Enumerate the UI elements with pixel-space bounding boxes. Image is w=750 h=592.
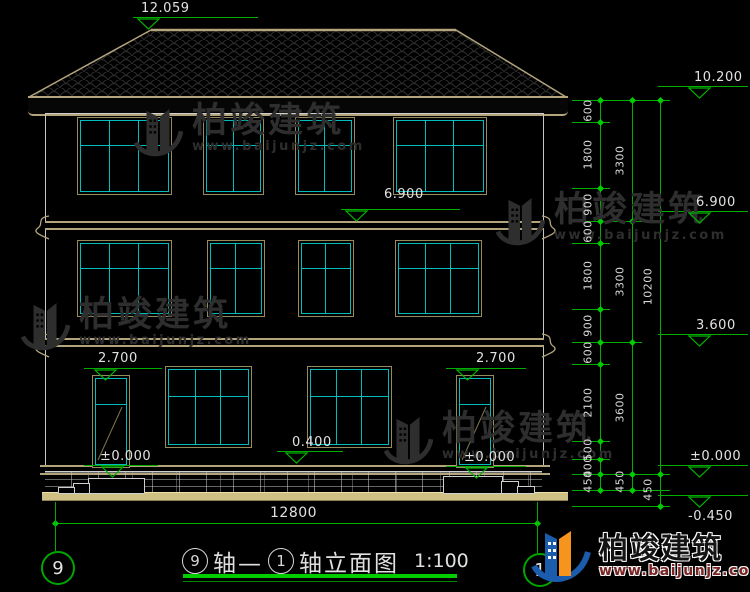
window-mullion — [138, 244, 139, 313]
dimension-value: 1800 — [583, 133, 594, 177]
dimension-value: 3300 — [615, 139, 626, 183]
belt-moulding-left — [31, 215, 51, 241]
window-mullion — [453, 121, 454, 191]
drawing-graphic — [689, 467, 710, 477]
elevation-marker-triangle — [345, 210, 369, 223]
dimension-tick — [597, 97, 604, 104]
dimension-tick — [629, 218, 636, 225]
window-mullion — [450, 244, 451, 313]
drawing-graphic — [36, 216, 49, 239]
window-mullion — [220, 370, 221, 444]
roof-surface — [29, 30, 566, 97]
dimension-value: 600 — [583, 331, 594, 375]
third-floor-window — [393, 117, 487, 195]
elevation-value: 6.900 — [696, 196, 736, 209]
second-floor-window — [298, 240, 354, 317]
drawing-graphic — [286, 453, 307, 463]
elevation-marker-triangle — [285, 452, 309, 465]
window-sash — [168, 369, 249, 445]
logo-tower-orange — [559, 531, 571, 576]
elevation-value: 3.600 — [696, 319, 736, 332]
elevation-value: 2.700 — [476, 352, 516, 365]
floor-band-6900 — [45, 221, 544, 230]
first-floor-window — [165, 366, 252, 448]
left-step-2 — [58, 487, 75, 494]
drawing-graphic — [542, 334, 555, 357]
elevation-marker-triangle — [688, 87, 712, 100]
window-sash — [301, 243, 351, 314]
title-text-1: 轴— — [213, 544, 263, 578]
elevation-marker-triangle — [456, 369, 480, 382]
drawing-graphic — [548, 542, 551, 545]
brand-url: www.baijunjz.com — [599, 563, 750, 579]
window-mullion — [425, 244, 426, 313]
logo-tower-blue — [545, 533, 557, 576]
left-step-1 — [73, 483, 90, 494]
drawing-graphic — [138, 19, 159, 29]
title-axis-9: 9 — [190, 552, 200, 570]
drawing-graphic — [553, 549, 556, 552]
window-sash — [398, 243, 479, 314]
title-scale: 1:100 — [414, 550, 469, 572]
drawing-graphic — [548, 549, 551, 552]
dimension-value: 2100 — [583, 381, 594, 425]
dimension-tick — [629, 471, 636, 478]
elevation-marker-triangle — [688, 212, 712, 225]
window-transom — [81, 268, 168, 269]
window-transom — [397, 145, 483, 146]
drawing-title: 9 轴— 1 轴立面图 1:100 — [182, 544, 469, 578]
elevation-marker-triangle — [465, 467, 489, 480]
window-transom — [81, 145, 168, 146]
window-sash — [80, 120, 169, 192]
window-sash — [310, 369, 389, 445]
dimension-value: 1800 — [583, 254, 594, 298]
drawing-graphic — [542, 216, 555, 239]
title-underline-thin — [183, 581, 457, 582]
dimension-value: 450 — [643, 468, 654, 512]
drawing-graphic — [36, 334, 49, 357]
dimension-tick — [597, 456, 604, 463]
window-transom — [399, 268, 478, 269]
title-axis-circle-1: 1 — [268, 548, 294, 574]
drawing-graphic — [41, 319, 43, 321]
window-mullion — [109, 121, 110, 191]
dimension-tick — [597, 119, 604, 126]
window-mullion — [425, 121, 426, 191]
elevation-value: -0.450 — [688, 510, 733, 523]
axis-bubble-9: 9 — [41, 551, 75, 585]
brand-logo-icon — [530, 524, 592, 588]
elevation-marker-triangle — [101, 466, 125, 479]
drawing-graphic: 柏竣建筑 www.baijunjz.com — [599, 533, 750, 579]
window-mullion — [233, 121, 234, 191]
dimension-tick — [629, 487, 636, 494]
third-floor-window — [295, 117, 355, 195]
dimension-value: 450 — [615, 460, 626, 504]
window-sash — [206, 120, 261, 192]
second-floor-window — [395, 240, 482, 317]
dimension-value: 600 — [583, 210, 594, 254]
dimension-tick — [597, 339, 604, 346]
drawing-graphic — [346, 211, 367, 221]
elevation-value: ±0.000 — [690, 450, 741, 463]
elevation-value: ±0.000 — [464, 451, 515, 464]
title-axis-1: 1 — [276, 552, 286, 570]
window-transom — [299, 145, 351, 146]
dimension-value: 600 — [583, 89, 594, 133]
drawing-graphic — [95, 370, 116, 380]
window-mullion — [325, 244, 326, 313]
window-transom — [211, 268, 261, 269]
elevation-marker-triangle — [688, 466, 712, 479]
window-mullion — [324, 121, 325, 191]
elevation-value: 12.059 — [141, 2, 190, 15]
drawing-graphic — [36, 325, 38, 327]
window-mullion — [195, 370, 196, 444]
level-extension-line — [572, 506, 670, 507]
dimension-tick — [597, 185, 604, 192]
elevation-marker-triangle — [94, 369, 118, 382]
dimension-tick — [657, 97, 664, 104]
drawing-graphic — [457, 370, 478, 380]
window-mullion — [336, 370, 337, 444]
left-door-platform — [88, 478, 145, 494]
window-mullion — [109, 244, 110, 313]
drawing-graphic — [36, 314, 43, 328]
dimension-tick — [597, 306, 604, 313]
second-floor-window — [77, 240, 172, 317]
dimension-tick — [629, 97, 636, 104]
drawing-graphic — [36, 314, 38, 316]
third-floor-window — [77, 117, 172, 195]
dimension-value: 10200 — [643, 265, 654, 309]
brand-logo: 柏竣建筑 www.baijunjz.com — [530, 524, 750, 588]
elevation-value: 10.200 — [694, 71, 743, 84]
dimension-tick — [597, 438, 604, 445]
drawing-graphic — [689, 88, 710, 98]
floor-band-3600 — [45, 338, 544, 347]
drawing-graphic — [548, 556, 551, 559]
dimension-tick — [597, 240, 604, 247]
window-sash — [210, 243, 262, 314]
dimension-tick — [657, 471, 664, 478]
drawing-graphic — [553, 542, 556, 545]
drawing-graphic — [102, 467, 123, 477]
drawing-graphic — [41, 325, 43, 327]
window-sash — [80, 243, 169, 314]
drawing-graphic — [36, 319, 38, 321]
dimension-value: 3600 — [615, 386, 626, 430]
window-transom — [302, 268, 350, 269]
title-text-2: 轴立面图 — [299, 544, 399, 578]
elevation-value: 0.400 — [292, 436, 332, 449]
elevation-marker-triangle — [688, 335, 712, 348]
drawing-graphic — [689, 497, 710, 507]
drawing-graphic — [689, 213, 710, 223]
drawing-graphic — [41, 314, 43, 316]
elevation-value: 2.700 — [98, 352, 138, 365]
dimension-tick — [597, 487, 604, 494]
drawing-graphic — [553, 556, 556, 559]
dimension-tick — [629, 339, 636, 346]
overall-dimension-line — [55, 523, 537, 524]
brand-name: 柏竣建筑 — [599, 533, 750, 563]
window-mullion — [235, 244, 236, 313]
dimension-value: 450 — [583, 460, 594, 504]
elevation-value: ±0.000 — [100, 450, 151, 463]
elevation-drawing: 柏竣建筑www.baijunjz.com柏竣建筑www.baijunjz.com… — [0, 0, 750, 592]
dimension-line-col2 — [632, 100, 633, 490]
third-floor-window — [203, 117, 264, 195]
window-sash — [396, 120, 484, 192]
dimension-tick — [597, 218, 604, 225]
dimension-tick — [657, 503, 664, 510]
belt-moulding-left-2 — [31, 333, 51, 359]
dimension-tick — [597, 361, 604, 368]
drawing-graphic — [466, 468, 487, 478]
window-mullion — [138, 121, 139, 191]
belt-moulding-right-2 — [540, 333, 560, 359]
dimension-extension-line — [55, 502, 56, 551]
window-sash — [298, 120, 352, 192]
belt-moulding-right — [540, 215, 560, 241]
title-axis-circle-9: 9 — [182, 548, 208, 574]
dimension-line-col3 — [660, 100, 661, 506]
elevation-marker-triangle — [137, 18, 161, 31]
drawing-graphic — [689, 336, 710, 346]
dimension-tick — [597, 471, 604, 478]
dimension-value: 3300 — [615, 260, 626, 304]
right-step-2 — [517, 486, 535, 494]
window-transom — [169, 396, 248, 397]
overall-dimension-value: 12800 — [270, 506, 317, 520]
elevation-marker-triangle — [688, 496, 712, 509]
dimension-line-col1 — [600, 100, 601, 490]
axis-bubble-9-label: 9 — [52, 558, 63, 579]
elevation-value: 6.900 — [384, 188, 424, 201]
window-mullion — [361, 370, 362, 444]
window-transom — [311, 396, 388, 397]
second-floor-window — [207, 240, 265, 317]
